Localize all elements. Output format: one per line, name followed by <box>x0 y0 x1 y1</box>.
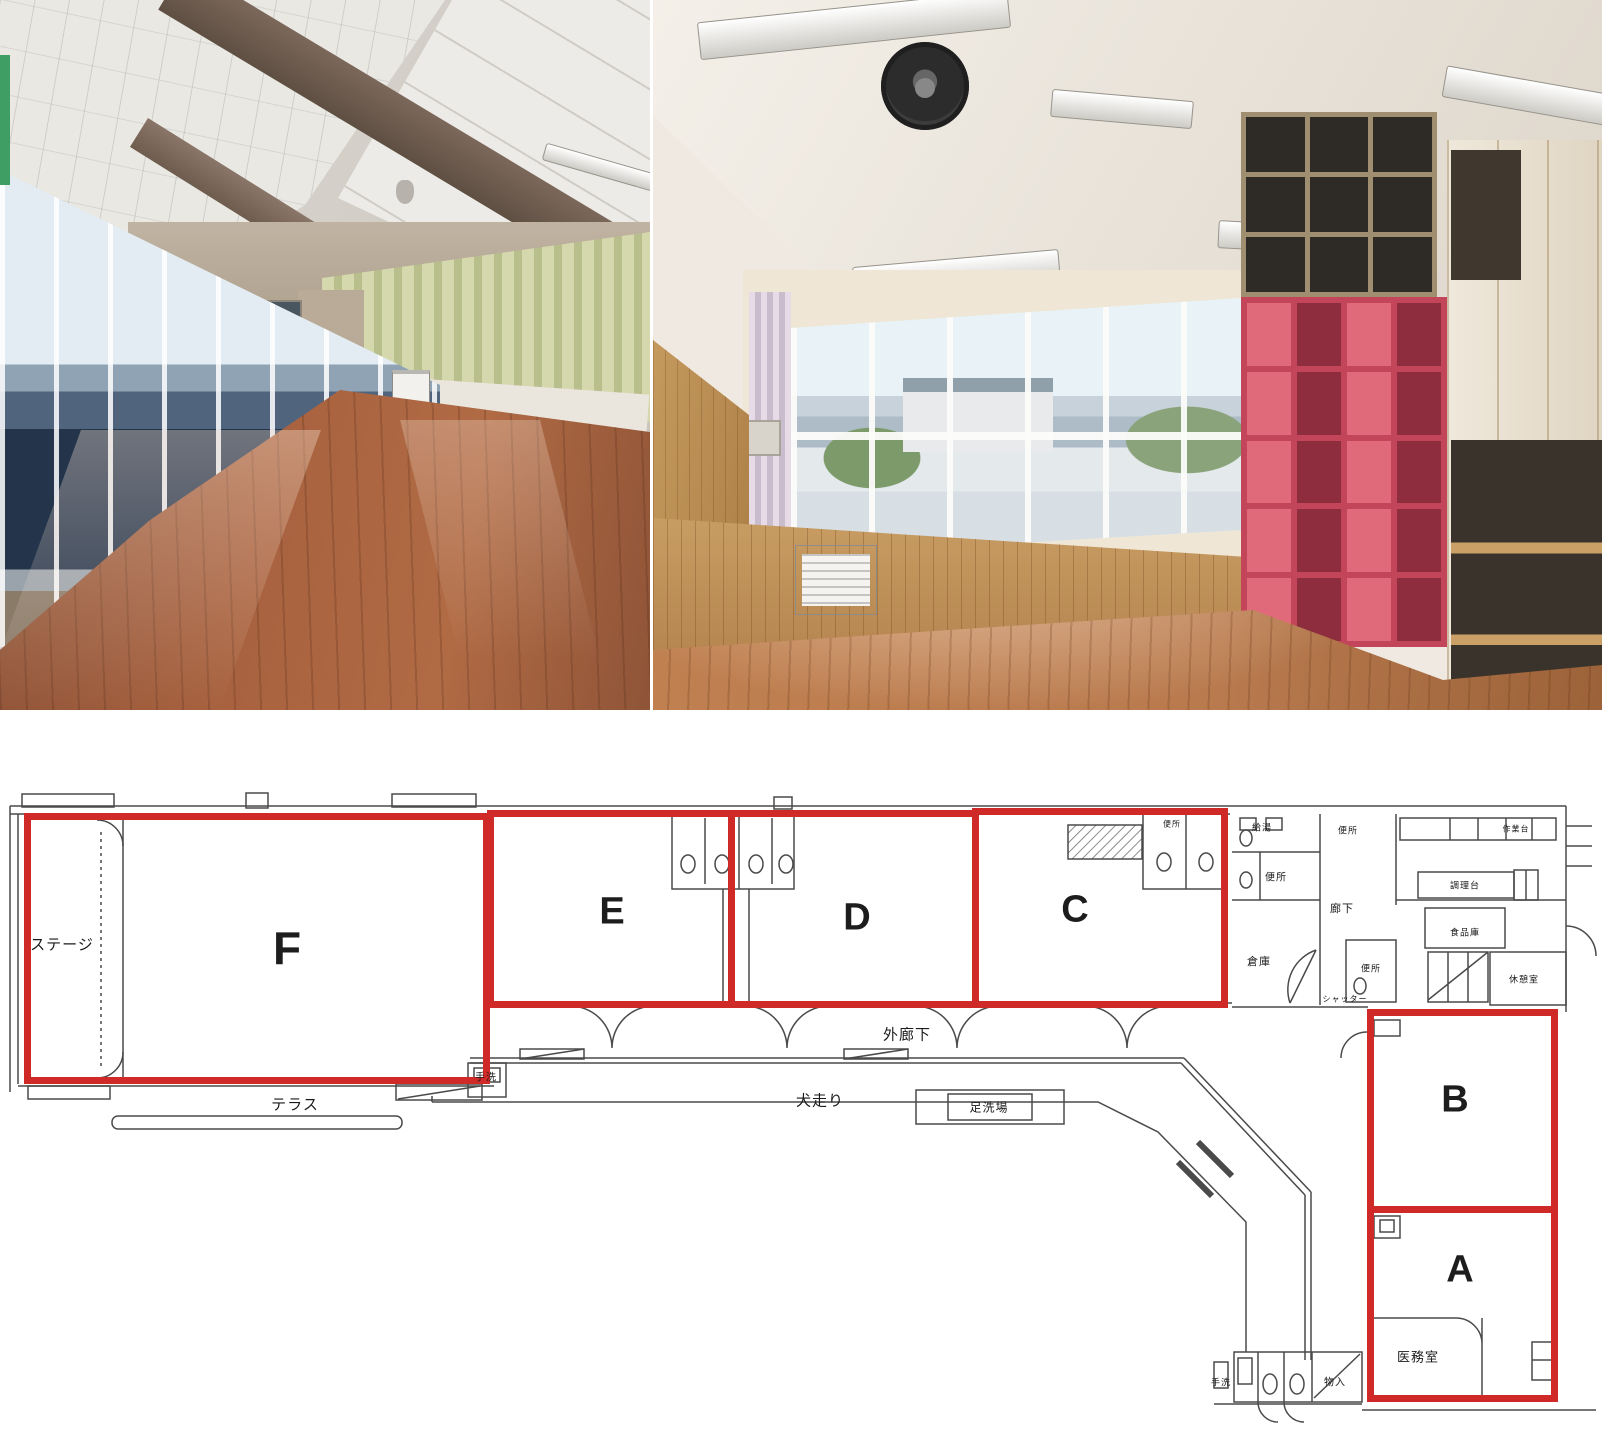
plan-annotation: 給湯 <box>1252 821 1272 834</box>
plan-annotation: 倉庫 <box>1247 953 1271 969</box>
page: FEDCBAステージテラス手洗外廊下犬走り足洗場便所給湯便所便所廊下倉庫シャッタ… <box>0 0 1602 1432</box>
plan-overlay-layer: FEDCBAステージテラス手洗外廊下犬走り足洗場便所給湯便所便所廊下倉庫シャッタ… <box>0 0 1602 1432</box>
plan-annotation: 便所 <box>1338 824 1358 837</box>
plan-annotation: ステージ <box>30 934 94 955</box>
plan-annotation: 便所 <box>1265 869 1287 884</box>
room-outline-A <box>1367 1206 1558 1402</box>
room-outline-F <box>24 813 490 1084</box>
plan-annotation: テラス <box>271 1094 319 1115</box>
room-outline-C <box>972 808 1228 1008</box>
room-label-B: B <box>1441 1079 1468 1122</box>
plan-annotation: 犬走り <box>796 1090 844 1111</box>
room-label-D: D <box>843 897 870 940</box>
plan-annotation: 調理台 <box>1450 879 1480 892</box>
plan-annotation: 便所 <box>1163 819 1181 830</box>
plan-annotation: 便所 <box>1361 962 1381 975</box>
plan-annotation: 手洗 <box>475 1069 497 1084</box>
room-label-A: A <box>1446 1249 1473 1292</box>
room-label-F: F <box>273 921 301 975</box>
plan-annotation: シャッター <box>1323 994 1368 1005</box>
plan-annotation: 休憩室 <box>1509 973 1539 986</box>
plan-annotation: 医務室 <box>1397 1347 1439 1366</box>
room-label-E: E <box>599 891 624 934</box>
plan-annotation: 物入 <box>1324 1374 1346 1389</box>
plan-annotation: 作業台 <box>1503 824 1530 835</box>
plan-annotation: 手洗 <box>1211 1376 1231 1389</box>
plan-annotation: 外廊下 <box>883 1024 931 1045</box>
room-label-C: C <box>1061 889 1088 932</box>
plan-annotation: 足洗場 <box>969 1099 1008 1116</box>
plan-annotation: 廊下 <box>1330 900 1354 916</box>
plan-annotation: 食品庫 <box>1450 926 1480 939</box>
